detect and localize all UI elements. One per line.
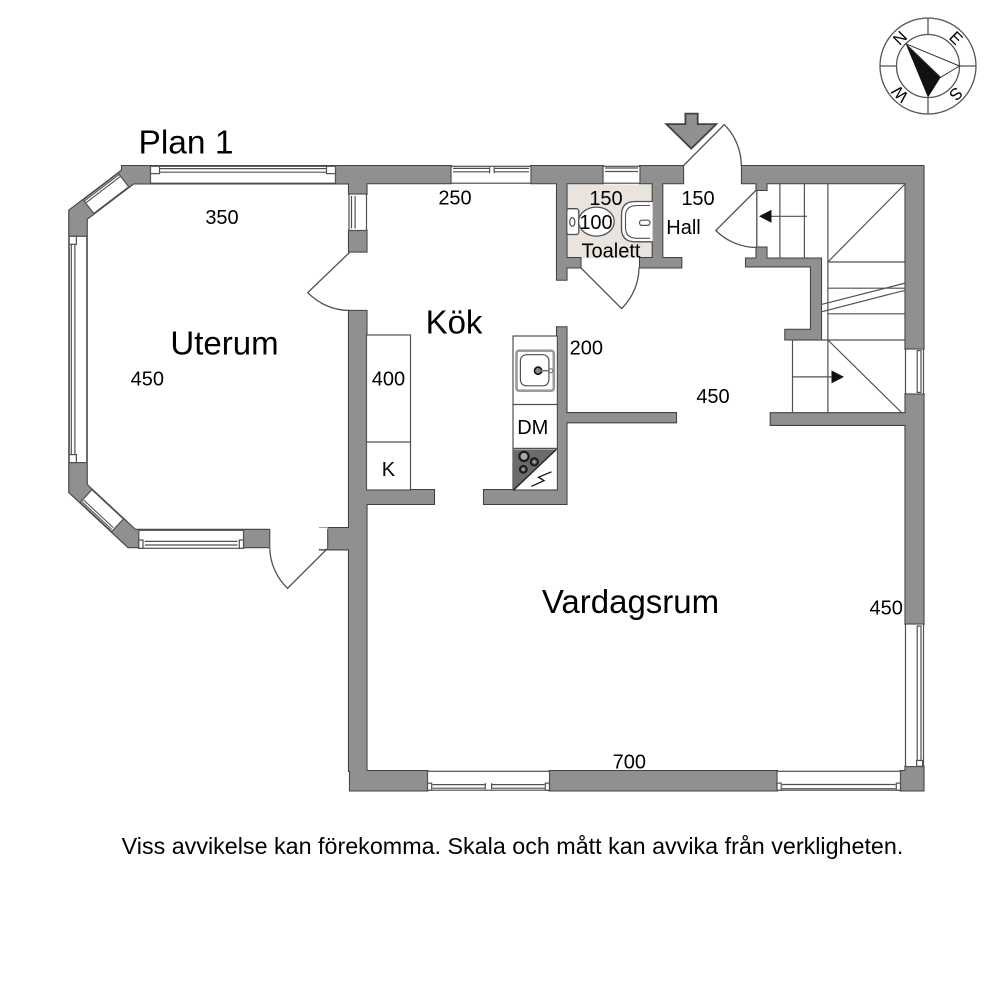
- svg-text:450: 450: [131, 369, 164, 391]
- svg-text:150: 150: [681, 188, 714, 210]
- svg-text:200: 200: [570, 338, 603, 360]
- svg-text:400: 400: [372, 369, 405, 391]
- svg-text:450: 450: [696, 386, 729, 408]
- svg-text:Viss avvikelse kan förekomma.: Viss avvikelse kan förekomma. Skala och …: [122, 833, 904, 859]
- svg-text:K: K: [382, 459, 396, 481]
- svg-text:350: 350: [205, 207, 238, 229]
- svg-text:Hall: Hall: [666, 217, 700, 239]
- svg-text:450: 450: [870, 598, 903, 620]
- svg-text:150: 150: [589, 188, 622, 210]
- svg-text:Plan 1: Plan 1: [139, 125, 234, 162]
- svg-text:100: 100: [579, 212, 612, 234]
- svg-text:DM: DM: [517, 417, 548, 439]
- svg-text:Uterum: Uterum: [170, 325, 278, 362]
- svg-text:250: 250: [438, 188, 471, 210]
- svg-text:Kök: Kök: [426, 303, 483, 340]
- svg-text:700: 700: [613, 752, 646, 774]
- svg-text:Toalett: Toalett: [582, 241, 641, 263]
- svg-text:Vardagsrum: Vardagsrum: [542, 583, 719, 620]
